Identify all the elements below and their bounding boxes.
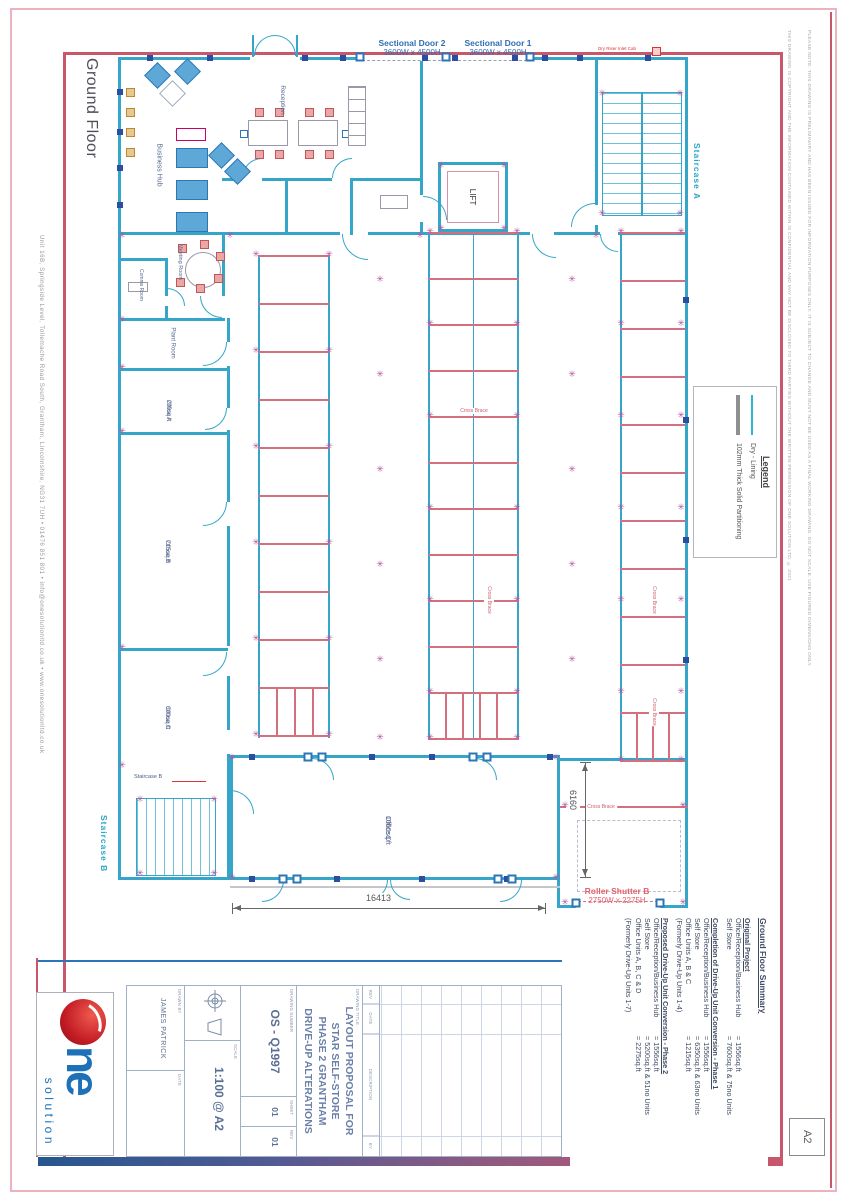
wall — [118, 765, 121, 880]
unit-partition-line — [258, 255, 330, 257]
drawing-number: OS - Q1997 — [268, 989, 282, 1094]
column-symbol: ✳ — [325, 731, 333, 739]
drawn-by: JAMES PATRICK — [159, 989, 166, 1068]
sh: Completion of Drive-Up Unit Conversion -… — [711, 918, 720, 1190]
unit-partition-line — [258, 351, 330, 353]
wall — [118, 318, 225, 321]
column-symbol: ✳ — [426, 734, 434, 742]
chair-p — [255, 108, 264, 117]
n: Sectional Door 2 — [364, 38, 460, 48]
tick — [580, 762, 591, 763]
row: Self Store= 7600sq.ft & 75no Units — [724, 918, 733, 1190]
wall — [227, 366, 230, 408]
legend-item-partition: 102mm Thick Solid Partitioning — [735, 395, 742, 549]
span: = 1556sq.ft — [702, 1036, 711, 1072]
column-symbol: ✳ — [376, 734, 384, 742]
wall — [118, 432, 228, 435]
column-symbol: ✳ — [252, 347, 260, 355]
column-symbol: ✳ — [677, 756, 685, 764]
partition-swatch — [737, 395, 741, 435]
unit-partition-line — [428, 646, 519, 648]
column-symbol: ✳ — [325, 251, 333, 259]
wall — [685, 57, 688, 908]
unit-partition-line — [620, 760, 685, 762]
rev-cell: REV 01 — [240, 1127, 296, 1157]
cross-brace-label: Cross Brace — [649, 586, 659, 614]
sofa — [159, 80, 186, 107]
k: Self Store — [693, 918, 702, 1036]
column-symbol: ✳ — [513, 320, 521, 328]
column-symbol: ✳ — [226, 232, 234, 240]
column-symbol: ✳ — [228, 754, 236, 762]
staircase-b-inner-label: Staircase B — [134, 774, 162, 780]
door-swing — [342, 234, 368, 260]
frow: DRAWING NUMBER OS - Q1997 SHEET 01 REV 0… — [240, 985, 296, 1157]
dimline — [585, 762, 586, 878]
unit-partition-line — [258, 543, 330, 545]
unit-partition-line — [428, 462, 519, 464]
sh: Proposed Drive-Up Unit Conversion - Phas… — [661, 918, 670, 1190]
scale-cell: SCALE 1:100 @ A2 — [184, 1041, 240, 1157]
n: Sectional Door 1 — [450, 38, 546, 48]
door-swing — [203, 652, 227, 676]
chair-t — [126, 148, 135, 157]
wall — [595, 57, 598, 205]
door-swing — [332, 158, 352, 178]
legend: Legend Dry - Lining 102mm Thick Solid Pa… — [693, 386, 777, 558]
column-symbol: ✳ — [118, 644, 126, 652]
lift-label: LIFT — [466, 189, 478, 205]
cross-brace-label: Cross Brace — [458, 408, 490, 414]
tick — [580, 877, 591, 878]
span: 300sq.ft — [162, 706, 172, 729]
chair-p — [255, 150, 264, 159]
wall — [118, 648, 228, 651]
column-symbol: ✳ — [426, 504, 434, 512]
column-symbol: ✳ — [676, 90, 684, 98]
furniture — [298, 120, 338, 146]
chair-t — [126, 128, 135, 137]
sheet-cell: SHEET 01 — [240, 1097, 296, 1127]
door-swing — [254, 35, 275, 56]
chair-p — [305, 150, 314, 159]
column-symbol: ✳ — [210, 796, 218, 804]
row: (Formerly Drive-Up Units 1-4) — [674, 918, 683, 1190]
unit-partition-line — [462, 692, 464, 738]
wall — [227, 318, 230, 342]
stair-b — [136, 798, 216, 876]
column-symbol: ✳ — [513, 688, 521, 696]
unit-partition-line — [258, 735, 330, 737]
wall-opening — [250, 56, 300, 61]
column-symbol: ✳ — [617, 688, 625, 696]
column-symbol: ✳ — [376, 466, 384, 474]
column-symbol: ✳ — [252, 539, 260, 547]
arrow-red — [172, 781, 206, 782]
drawn-by-cell: DRAWN BY JAMES PATRICK — [126, 985, 184, 1071]
wall — [620, 232, 622, 760]
column-symbol: ✳ — [568, 466, 576, 474]
column-symbol: ✳ — [513, 412, 521, 420]
k: Office/Reception/Business Hub — [734, 918, 743, 1036]
column-symbol: ✳ — [426, 688, 434, 696]
title-block: REV DATE DESCRIPTION BY DRAWING TITLE LA… — [120, 985, 562, 1157]
drawing-title: LAYOUT PROPOSAL FOR — [341, 986, 355, 1156]
steel-column-marker — [645, 55, 651, 61]
steel-column-marker — [302, 55, 308, 61]
span: = 6350sq.ft & 63no Units — [693, 1036, 702, 1115]
column-symbol: ✳ — [617, 504, 625, 512]
row: Office/Reception/Business Hub= 1556sq.ft — [702, 918, 711, 1190]
frow: DRAWN BY JAMES PATRICK DATE — [126, 985, 184, 1157]
line: STAR SELF-STORE — [328, 986, 342, 1156]
title-block-fields: DRAWING NUMBER OS - Q1997 SHEET 01 REV 0… — [126, 985, 296, 1157]
steel-column-marker — [369, 754, 375, 760]
desk — [176, 148, 208, 168]
staircase-a-label: Staircase A — [692, 143, 702, 200]
column-symbol: ✳ — [552, 874, 560, 882]
column-symbol: ✳ — [426, 320, 434, 328]
span: = 7600sq.ft & 75no Units — [724, 1036, 733, 1115]
wall — [517, 232, 519, 738]
sofa — [174, 58, 201, 85]
column-symbol: ✳ — [252, 635, 260, 643]
column-symbol: ✳ — [592, 232, 600, 240]
door-swing — [205, 408, 227, 430]
wall — [352, 178, 420, 181]
door-frame-marker — [318, 753, 327, 762]
column-symbol: ✳ — [118, 316, 126, 324]
logo-sphere-icon — [60, 999, 106, 1045]
desk — [176, 212, 208, 232]
column-symbol: ✳ — [617, 596, 625, 604]
minilab: DRAWN BY — [177, 989, 182, 1014]
minilab: DESCRIPTION — [363, 1034, 379, 1136]
door-frame-marker — [469, 753, 478, 762]
row: Office Units A, B & C= 1215sq.ft — [684, 918, 693, 1190]
wall — [118, 368, 228, 371]
roller-shutter-b-label: Roller Shutter B 2750W x 2275H — [562, 886, 672, 906]
door-swing — [230, 790, 254, 814]
column-symbol: ✳ — [617, 320, 625, 328]
frow: SCALE 1:100 @ A2 — [184, 985, 240, 1157]
logo-tagline: solution — [42, 1078, 56, 1147]
unit-partition-line — [445, 692, 447, 738]
rev-number: 01 — [270, 1130, 280, 1154]
span: = 1215sq.ft — [684, 1036, 693, 1072]
column-symbol: ✳ — [513, 734, 521, 742]
column-symbol: ✳ — [676, 210, 684, 218]
unit-partition-line — [620, 568, 685, 570]
column-symbol: ✳ — [136, 870, 144, 878]
line: PHASE 2 GRANTHAM — [314, 986, 328, 1156]
furniture — [248, 120, 288, 146]
column-symbol: ✳ — [118, 762, 126, 770]
n: Roller Shutter B — [562, 886, 672, 896]
steel-column-marker — [683, 417, 689, 423]
company-logo: ne solution — [36, 992, 114, 1156]
wall — [118, 258, 168, 261]
unit-partition-line — [620, 376, 685, 378]
steel-column-marker — [683, 297, 689, 303]
wall — [227, 526, 230, 646]
unit-partition-line — [258, 591, 330, 593]
s: 2750W x 2275H — [562, 896, 672, 906]
unit-partition-line — [258, 639, 330, 641]
lab: 102mm Thick Solid Partitioning — [735, 443, 742, 539]
door-frame-marker — [279, 875, 288, 884]
row: Office Units A, B, C & D= 2275sq.ft — [634, 918, 643, 1190]
tick — [545, 903, 546, 914]
column-symbol: ✳ — [376, 276, 384, 284]
rev-col — [363, 1004, 561, 1005]
line: DRIVE-UP ALTERATIONS — [300, 986, 314, 1156]
steel-column-marker — [117, 202, 123, 208]
column-symbol: ✳ — [500, 162, 508, 170]
unit-partition-line — [668, 712, 670, 760]
unit-partition-line — [258, 303, 330, 305]
minilab: DATE — [363, 1004, 379, 1034]
legend-title: Legend — [761, 395, 771, 549]
k: Office Units A, B, C & D — [634, 918, 643, 1036]
unit-partition-line — [258, 399, 330, 401]
column-symbol: ✳ — [513, 596, 521, 604]
column-symbol: ✳ — [437, 225, 445, 233]
minilab: SHEET — [289, 1100, 294, 1115]
span: 200sq.ft — [163, 400, 172, 421]
unit-partition-line — [428, 278, 519, 280]
s: 3600W x 4500H — [364, 48, 460, 58]
rev-col — [363, 1136, 561, 1137]
minilab: DRAWING NUMBER — [289, 989, 294, 1032]
span: = 2275sq.ft — [634, 1036, 643, 1072]
door-swing — [532, 234, 556, 258]
column-symbol: ✳ — [568, 561, 576, 569]
ground-floor-summary: Ground Floor Summary Original Project Of… — [570, 918, 768, 1190]
k: Self Store — [643, 918, 652, 1036]
cabinet — [176, 128, 206, 141]
chair-t — [126, 108, 135, 117]
column-symbol: ✳ — [376, 371, 384, 379]
steel-column-marker — [683, 537, 689, 543]
unit-partition-line — [258, 447, 330, 449]
div — [582, 764, 588, 771]
row: Self Store= 6350sq.ft & 63no Units — [693, 918, 702, 1190]
room-label-plant-room: Plant Room — [168, 327, 177, 358]
chair-p — [214, 274, 223, 283]
column-symbol: ✳ — [677, 688, 685, 696]
rev-head: REV DATE DESCRIPTION BY — [363, 986, 380, 1156]
unit-partition-line — [294, 687, 296, 735]
steel-column-marker — [207, 55, 213, 61]
unit-partition-line — [620, 520, 685, 522]
chair-t — [126, 88, 135, 97]
chair-p — [196, 284, 205, 293]
column-symbol: ✳ — [677, 228, 685, 236]
column-symbol: ✳ — [136, 796, 144, 804]
chair-p — [216, 252, 225, 261]
k: (Formerly Drive-Up Units 1-4) — [674, 918, 683, 1036]
door-swing — [600, 234, 618, 252]
unit-partition-line — [620, 472, 685, 474]
sh: Original Project — [743, 918, 752, 1190]
g — [204, 990, 226, 1035]
wall — [230, 755, 560, 758]
span: = 1556sq.ft — [652, 1036, 661, 1072]
column-symbol: ✳ — [426, 596, 434, 604]
steel-column-marker — [249, 754, 255, 760]
unit-partition-line — [276, 687, 278, 735]
cross-brace-label: Cross Brace — [484, 586, 494, 614]
unit-partition-line — [496, 692, 498, 738]
revision-table: REV DATE DESCRIPTION BY — [362, 985, 562, 1157]
wall — [165, 306, 168, 318]
door-swing — [203, 502, 227, 526]
steel-column-marker — [249, 876, 255, 882]
sectional-door-2-label: Sectional Door 2 3600W x 4500H — [364, 38, 460, 58]
unit-partition-line — [428, 600, 519, 602]
unit-partition-line — [312, 687, 314, 735]
minilab: REV — [289, 1130, 294, 1139]
cross-brace-label: Cross Brace — [649, 698, 659, 726]
legend-item-dry-lining: Dry - Lining — [749, 395, 756, 549]
column-symbol: ✳ — [568, 656, 576, 664]
door-frame-marker — [508, 875, 517, 884]
column-symbol: ✳ — [598, 210, 606, 218]
wall — [222, 232, 225, 296]
column-symbol: ✳ — [376, 561, 384, 569]
column-symbol: ✳ — [552, 754, 560, 762]
dry-lining-swatch — [752, 395, 754, 435]
date-cell: DATE — [126, 1071, 184, 1157]
wall — [350, 178, 353, 235]
door-frame-marker — [304, 753, 313, 762]
steel-column-marker — [334, 876, 340, 882]
k: Office Units A, B & C — [684, 918, 693, 1036]
room-label-reception: Reception — [277, 85, 287, 114]
div — [538, 905, 545, 911]
shelf — [348, 86, 366, 146]
column-symbol: ✳ — [325, 347, 333, 355]
unit-partition-line — [479, 692, 481, 738]
staircase-b-label: Staircase B — [99, 815, 109, 872]
span: 715sq.ft — [162, 540, 172, 563]
unit-partition-line — [258, 495, 330, 497]
column-symbol: ✳ — [568, 371, 576, 379]
door-swing — [571, 203, 595, 227]
k: Office/Reception/Business Hub — [652, 918, 661, 1036]
steel-column-marker — [683, 657, 689, 663]
unit-partition-line — [428, 508, 519, 510]
dimline — [232, 908, 546, 909]
chair-p — [200, 240, 209, 249]
column-symbol: ✳ — [376, 656, 384, 664]
s: 3600W x 4500H — [450, 48, 546, 58]
column-symbol: ✳ — [679, 899, 687, 907]
dry-riser-box — [652, 47, 661, 56]
furniture — [380, 195, 408, 209]
scale-value: 1:100 @ A2 — [212, 1044, 226, 1154]
door-frame-marker — [483, 753, 492, 762]
row: Office/Reception/Business Hub= 1556sq.ft — [734, 918, 743, 1190]
desk — [176, 180, 208, 200]
minilab: SCALE — [233, 1044, 238, 1059]
room-label-business-hub: Business Hub — [153, 143, 164, 186]
door-frame-marker — [494, 875, 503, 884]
wall — [473, 232, 474, 738]
column-symbol: ✳ — [210, 870, 218, 878]
minilab: REV — [363, 986, 379, 1004]
unit-partition-line — [620, 328, 685, 330]
wall — [262, 178, 332, 181]
bluemark — [240, 130, 248, 138]
steel-column-marker — [429, 754, 435, 760]
column-symbol: ✳ — [437, 162, 445, 170]
dry-riser-label: Dry Riser Inlet Cab — [598, 46, 636, 51]
unit-partition-line — [428, 738, 519, 740]
unit-partition-line — [428, 324, 519, 326]
projection-symbol-icon — [198, 989, 232, 1037]
unit-partition-line — [620, 664, 685, 666]
steel-column-marker — [577, 55, 583, 61]
column-symbol: ✳ — [416, 232, 424, 240]
column-symbol: ✳ — [426, 228, 434, 236]
column-symbol: ✳ — [252, 251, 260, 259]
dimension-width: 16413 — [364, 893, 393, 903]
drawing-number-cell: DRAWING NUMBER OS - Q1997 — [240, 985, 296, 1097]
column-symbol: ✳ — [500, 225, 508, 233]
sheet-number: 01 — [270, 1100, 280, 1124]
minilab: DATE — [177, 1074, 182, 1086]
row: Self Store= 5200sq.ft & 51no Units — [643, 918, 652, 1190]
column-symbol: ✳ — [252, 443, 260, 451]
summary-heading: Ground Floor Summary — [757, 918, 768, 1190]
sectional-door-1-label: Sectional Door 1 3600W x 4500H — [450, 38, 546, 58]
k: Office/Reception/Business Hub — [702, 918, 711, 1036]
dashed-opening — [448, 60, 532, 62]
chair-p — [325, 108, 334, 117]
rev-col — [363, 1034, 561, 1035]
column-symbol: ✳ — [598, 90, 606, 98]
wall — [285, 178, 288, 235]
column-symbol: ✳ — [513, 504, 521, 512]
door-swing — [203, 342, 227, 366]
column-symbol: ✳ — [325, 635, 333, 643]
column-symbol: ✳ — [617, 228, 625, 236]
span: = 1556sq.ft — [734, 1036, 743, 1072]
div — [234, 905, 241, 911]
column-symbol: ✳ — [118, 232, 126, 240]
projection-cell — [184, 985, 240, 1041]
column-symbol: ✳ — [325, 443, 333, 451]
tick — [232, 903, 233, 914]
steel-column-marker — [340, 55, 346, 61]
door-swing — [200, 296, 222, 318]
row: Office/Reception/Business Hub= 1556sq.ft — [652, 918, 661, 1190]
column-symbol: ✳ — [561, 802, 569, 810]
unit-partition-line — [428, 370, 519, 372]
column-symbol: ✳ — [325, 539, 333, 547]
column-symbol: ✳ — [677, 504, 685, 512]
span: 1060sq.ft — [382, 816, 393, 845]
minilab: BY — [363, 1136, 379, 1156]
drawing-sheet: Ground Floor Unit 16B, Springside Level,… — [0, 0, 847, 1200]
div — [582, 869, 588, 876]
steel-column-marker — [117, 129, 123, 135]
column-symbol: ✳ — [617, 756, 625, 764]
steel-column-marker — [547, 754, 553, 760]
chair-p — [275, 150, 284, 159]
